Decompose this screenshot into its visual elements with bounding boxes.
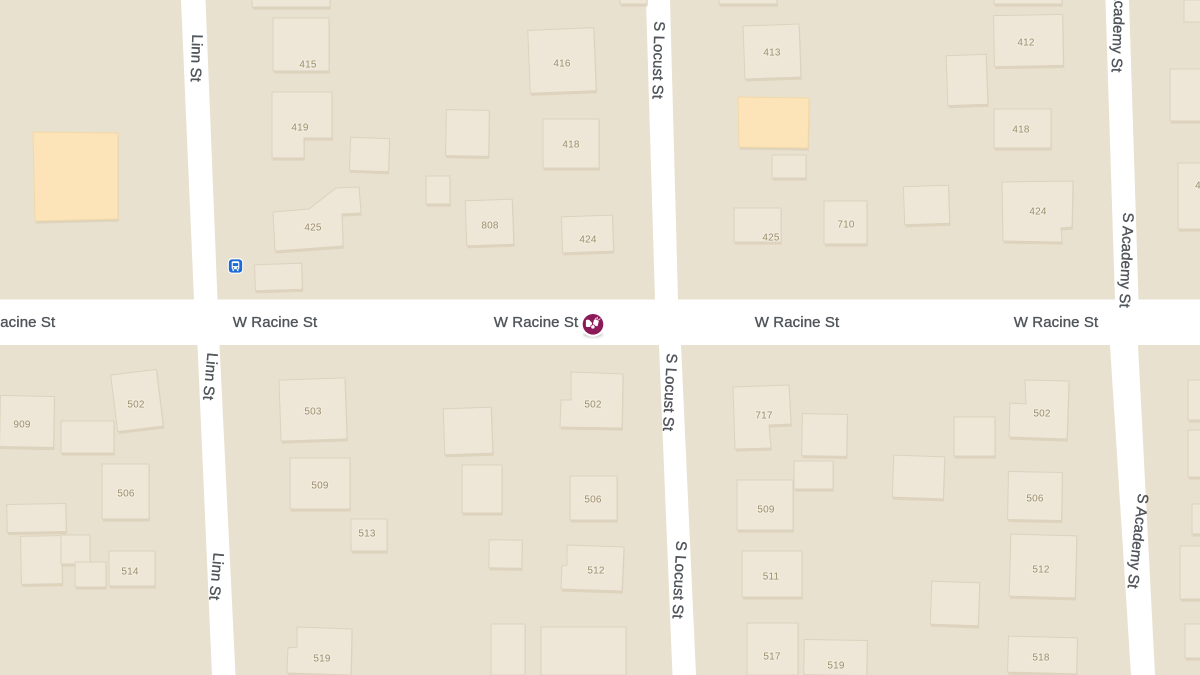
svg-text:418: 418 <box>562 140 580 151</box>
svg-text:502: 502 <box>1033 409 1051 420</box>
svg-text:513: 513 <box>358 529 376 540</box>
svg-text:4: 4 <box>1195 181 1200 192</box>
svg-text:425: 425 <box>762 233 780 244</box>
svg-text:502: 502 <box>127 400 145 411</box>
svg-text:424: 424 <box>579 235 597 246</box>
svg-text:518: 518 <box>1032 653 1050 664</box>
svg-text:509: 509 <box>757 505 775 516</box>
svg-text:519: 519 <box>827 661 845 672</box>
svg-text:710: 710 <box>837 220 855 231</box>
svg-text:506: 506 <box>1026 494 1044 505</box>
svg-text:S Academy St: S Academy St <box>1108 0 1129 73</box>
svg-text:717: 717 <box>755 411 773 422</box>
svg-text:503: 503 <box>304 407 322 418</box>
svg-text:511: 511 <box>763 572 780 583</box>
svg-text:808: 808 <box>481 221 499 232</box>
svg-text:512: 512 <box>587 566 605 577</box>
svg-text:506: 506 <box>584 495 602 506</box>
svg-text:419: 419 <box>291 123 309 134</box>
svg-text:416: 416 <box>553 59 571 70</box>
svg-text:517: 517 <box>763 652 781 663</box>
svg-text:W Racine St: W Racine St <box>0 314 56 331</box>
svg-text:514: 514 <box>121 567 139 578</box>
svg-text:418: 418 <box>1012 125 1030 136</box>
svg-text:512: 512 <box>1032 565 1050 576</box>
svg-text:W Racine St: W Racine St <box>233 314 318 331</box>
svg-text:412: 412 <box>1017 38 1035 49</box>
svg-text:425: 425 <box>304 223 322 234</box>
svg-text:W Racine St: W Racine St <box>755 314 840 331</box>
svg-text:Linn St: Linn St <box>187 34 206 83</box>
svg-text:506: 506 <box>117 489 135 500</box>
svg-text:W Racine St: W Racine St <box>494 314 579 331</box>
svg-text:502: 502 <box>584 400 602 411</box>
svg-text:509: 509 <box>311 481 329 492</box>
svg-text:519: 519 <box>313 654 331 665</box>
svg-text:909: 909 <box>13 420 31 431</box>
svg-text:415: 415 <box>299 60 317 71</box>
svg-text:W Racine St: W Racine St <box>1014 314 1099 331</box>
svg-text:424: 424 <box>1029 207 1047 218</box>
svg-text:413: 413 <box>763 48 781 59</box>
svg-text:S Locust St: S Locust St <box>648 21 667 100</box>
